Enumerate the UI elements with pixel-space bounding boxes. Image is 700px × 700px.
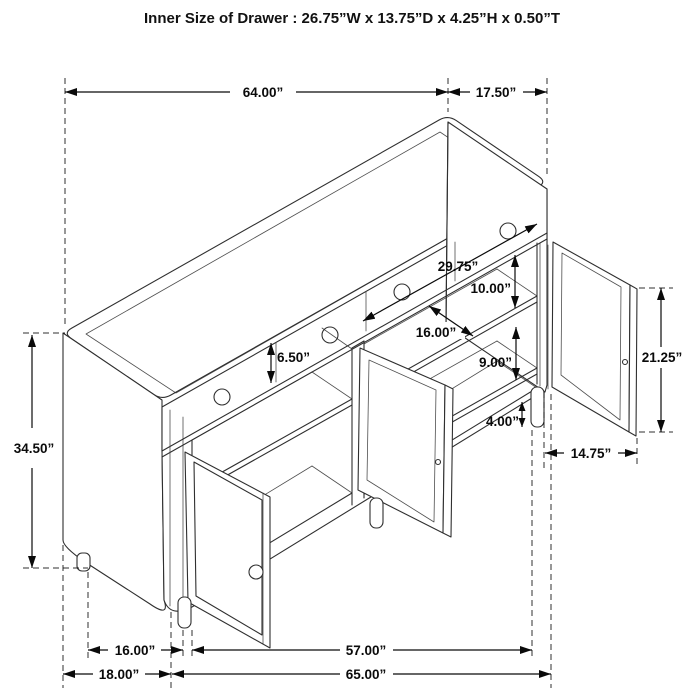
dim-label-door-width: 14.75” — [571, 446, 612, 461]
dim-label-feet-depth: 16.00” — [115, 643, 156, 658]
mesh-door-knob — [249, 565, 263, 579]
dim-label-base-depth: 18.00” — [99, 667, 140, 682]
dim-feet-depth: 16.00” — [88, 643, 183, 658]
dim-base-depth: 18.00” — [63, 667, 171, 682]
dim-label-lower-shelf-gap: 9.00” — [479, 355, 512, 370]
dim-label-overall-height: 34.50” — [14, 441, 55, 456]
dim-label-top-width: 64.00” — [243, 85, 284, 100]
dim-door-height: 21.25” — [639, 288, 682, 432]
dim-label-feet-span: 57.00” — [346, 643, 387, 658]
dim-top-width: 64.00” — [65, 85, 448, 100]
diagram-title: Inner Size of Drawer : 26.75”W x 13.75”D… — [144, 10, 560, 27]
dim-label-leg-height: 4.00” — [486, 414, 519, 429]
dim-base-width: 65.00” — [172, 667, 551, 682]
dim-feet-span: 57.00” — [192, 643, 532, 658]
drawer-knob — [394, 284, 410, 300]
foot-front-left — [178, 597, 191, 628]
dim-label-inner-width: 29.75” — [438, 259, 479, 274]
foot-middle — [370, 498, 383, 528]
drawer-knob — [214, 389, 230, 405]
foot-front-right — [531, 387, 544, 427]
sideboard-dimension-drawing: 64.00” 17.50” 34.50” 6.50” 29.75” — [0, 0, 700, 700]
right-door-open — [552, 242, 637, 436]
dim-label-top-depth: 17.50” — [476, 85, 517, 100]
dim-label-base-width: 65.00” — [346, 667, 387, 682]
dim-label-shelf-depth: 16.00” — [416, 325, 457, 340]
dim-label-door-height: 21.25” — [642, 350, 683, 365]
dim-label-upper-shelf-gap: 10.00” — [470, 281, 511, 296]
dim-label-drawer-face: 6.50” — [277, 350, 310, 365]
dim-top-depth: 17.50” — [448, 85, 547, 100]
product-dimension-diagram: 64.00” 17.50” 34.50” 6.50” 29.75” — [0, 0, 700, 700]
